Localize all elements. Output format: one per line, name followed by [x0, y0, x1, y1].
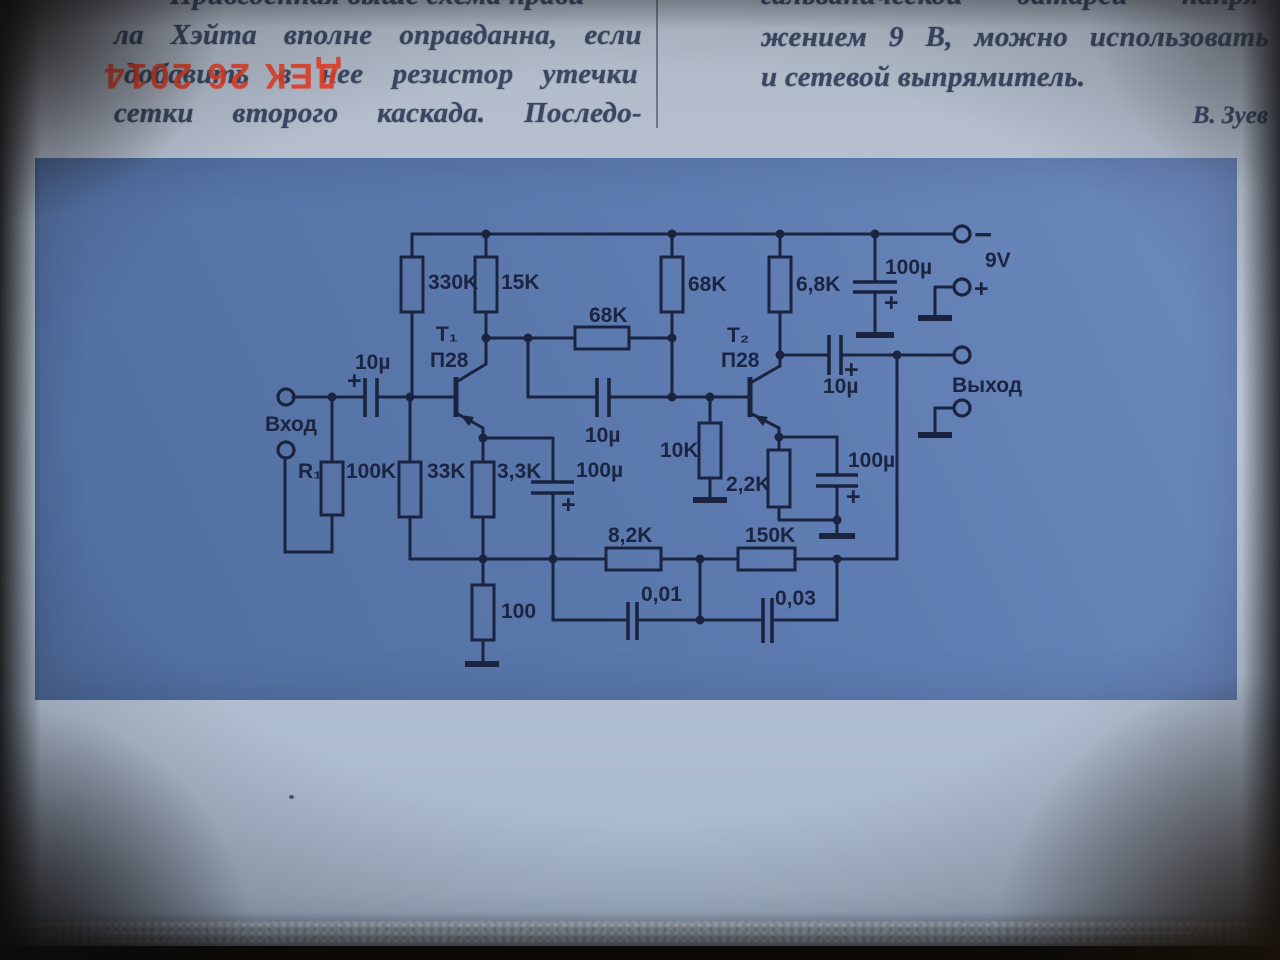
label-8k2: 8,2K	[608, 524, 652, 547]
capacitor-output-10u	[829, 335, 841, 375]
resistor-8k2-body	[606, 548, 661, 570]
resistor-bodies	[321, 257, 795, 640]
t2-emitter-arrow	[754, 415, 768, 426]
plus-input-cap: +	[347, 367, 362, 395]
label-150k: 150K	[745, 524, 795, 547]
resistor-150k-body	[738, 548, 795, 570]
label-15k: 15K	[501, 271, 540, 294]
resistor-33k-body	[399, 462, 421, 517]
dust-speck	[289, 795, 294, 799]
plus-power-cap: +	[884, 289, 899, 317]
capacitor-fb-003	[763, 598, 772, 643]
resistor-3k3-body	[472, 462, 494, 517]
component-labels: 330K 15K 68K 6,8K 100µ 9V − + 68K Т₁ П28…	[265, 217, 1022, 623]
battery-plus-sign: +	[974, 275, 989, 303]
input-terminal-bottom	[278, 442, 294, 458]
magazine-page-photo: Приведенная выше схема прави- ла Хэйта в…	[0, 0, 1280, 960]
circuit-svg: 330K 15K 68K 6,8K 100µ 9V − + 68K Т₁ П28…	[0, 0, 1280, 960]
resistor-2k2-body	[768, 450, 790, 507]
label-t1-name: Т₁	[436, 323, 458, 346]
label-input: Вход	[265, 413, 317, 436]
terminals	[278, 226, 970, 458]
t1-emitter-arrow	[460, 415, 474, 426]
transistor-t1	[456, 377, 474, 426]
photo-bottom-edge	[0, 946, 1280, 960]
resistor-68k-fb-body	[575, 327, 629, 349]
label-3k3: 3,3K	[497, 460, 541, 483]
label-output: Выход	[952, 374, 1022, 397]
resistor-r1-body	[321, 462, 343, 515]
label-t2-name: Т₂	[727, 324, 749, 347]
battery-terminal-minus	[954, 226, 970, 242]
label-003: 0,03	[775, 587, 816, 610]
label-001: 0,01	[641, 583, 682, 606]
label-t1-type: П28	[430, 349, 469, 372]
label-68k-vert: 68K	[688, 273, 727, 296]
wires	[285, 234, 954, 661]
output-terminal-bottom	[954, 400, 970, 416]
label-100u-e2: 100µ	[848, 449, 895, 472]
capacitor-input-10u	[365, 378, 377, 417]
label-330k: 330K	[428, 271, 478, 294]
label-100u-power: 100µ	[885, 256, 932, 279]
plus-e1-cap: +	[561, 491, 576, 519]
resistor-68k-body	[661, 257, 683, 312]
resistor-6k8-body	[769, 257, 791, 312]
label-9v: 9V	[985, 249, 1011, 272]
label-r1-name: R₁	[298, 460, 322, 483]
label-100u-e1: 100µ	[576, 459, 623, 482]
plus-e2-cap: +	[846, 483, 861, 511]
output-terminal-top	[954, 347, 970, 363]
label-10k: 10K	[660, 439, 699, 462]
label-t2-type: П28	[721, 349, 760, 372]
resistor-15k-body	[475, 257, 497, 312]
label-r1-value: 100K	[346, 460, 396, 483]
label-6k8: 6,8K	[796, 273, 840, 296]
transistor-t2	[750, 377, 768, 426]
label-68k-fb: 68K	[589, 304, 628, 327]
label-2k2: 2,2K	[726, 473, 770, 496]
battery-minus-sign: −	[974, 217, 992, 252]
resistor-10k-body	[699, 423, 721, 478]
resistor-100-body	[472, 585, 494, 640]
resistor-330k-body	[401, 257, 423, 312]
label-100: 100	[501, 600, 536, 623]
page-edge-texture	[0, 921, 1280, 949]
capacitor-fb-001	[628, 602, 637, 640]
battery-terminal-plus	[954, 279, 970, 295]
plus-output-cap: +	[844, 356, 859, 384]
label-10u-mid: 10µ	[585, 424, 620, 447]
capacitor-mid-10u	[597, 378, 609, 417]
label-33k: 33K	[427, 460, 466, 483]
